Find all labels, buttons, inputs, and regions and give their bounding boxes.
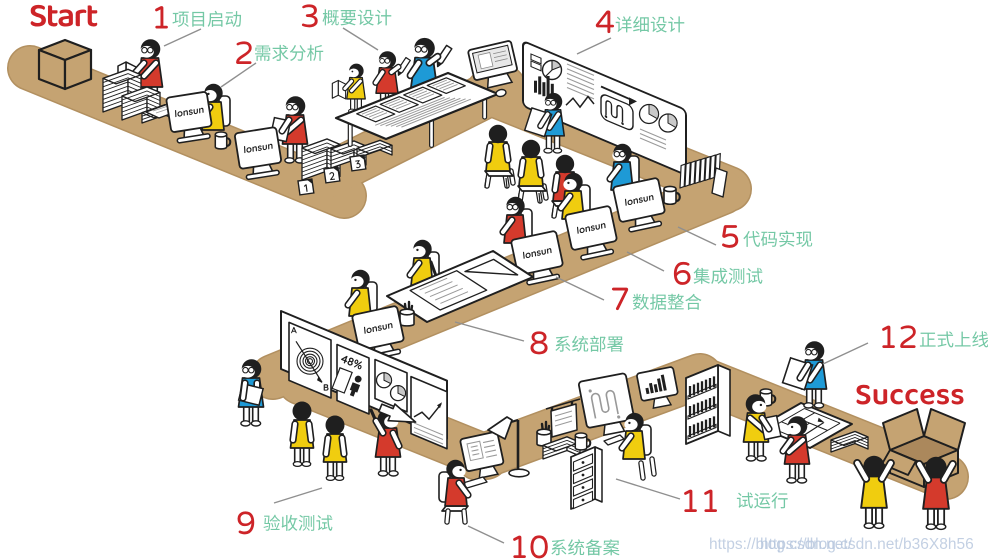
svg-text:https://blog.csdn.net/b36X8h56: https://blog.csdn.net/b36X8h56: [760, 536, 974, 553]
